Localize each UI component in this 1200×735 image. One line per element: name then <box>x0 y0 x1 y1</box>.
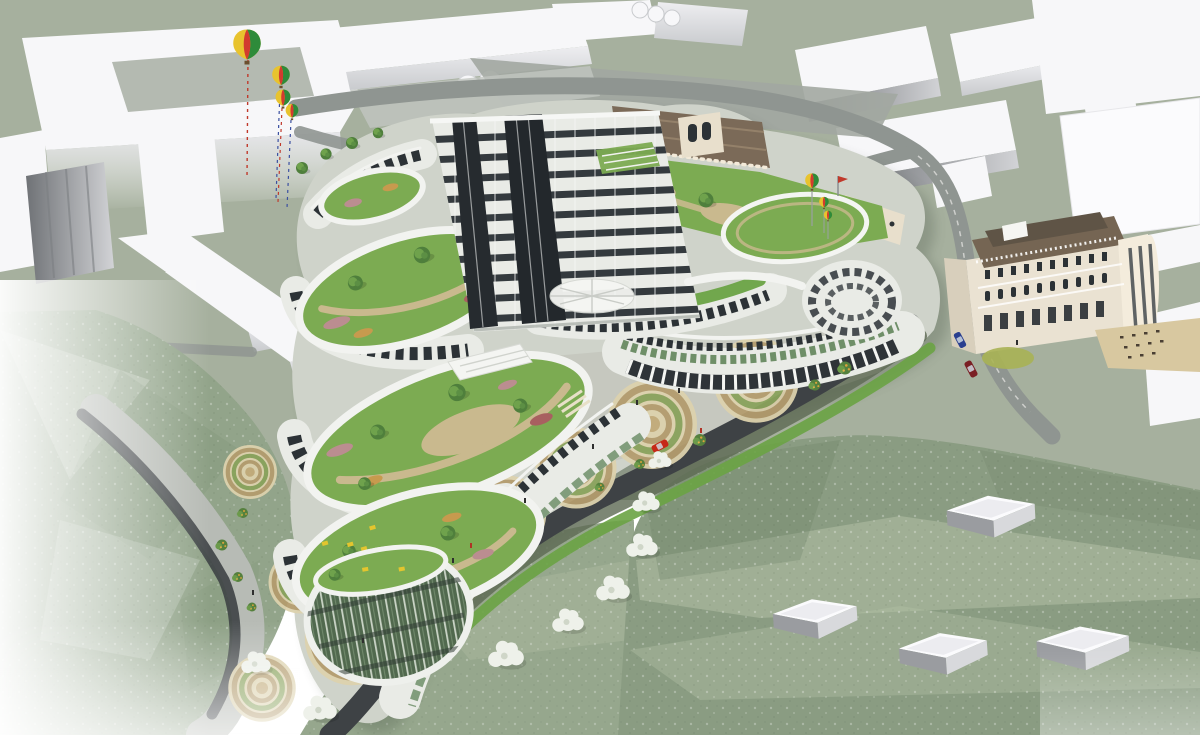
aerial-rendering <box>0 0 1200 735</box>
rendering-canvas <box>0 0 1200 735</box>
rotunda-building <box>802 260 902 340</box>
massing-corner-slab-1 <box>1032 0 1200 114</box>
classical-turret <box>1118 234 1159 338</box>
massing-dark-block <box>26 162 114 284</box>
front-lawn-circle <box>982 347 1034 369</box>
paving-rings <box>223 445 277 499</box>
arched-dormer <box>678 112 724 158</box>
round-pergola <box>550 279 634 313</box>
massing-bar <box>138 134 224 242</box>
